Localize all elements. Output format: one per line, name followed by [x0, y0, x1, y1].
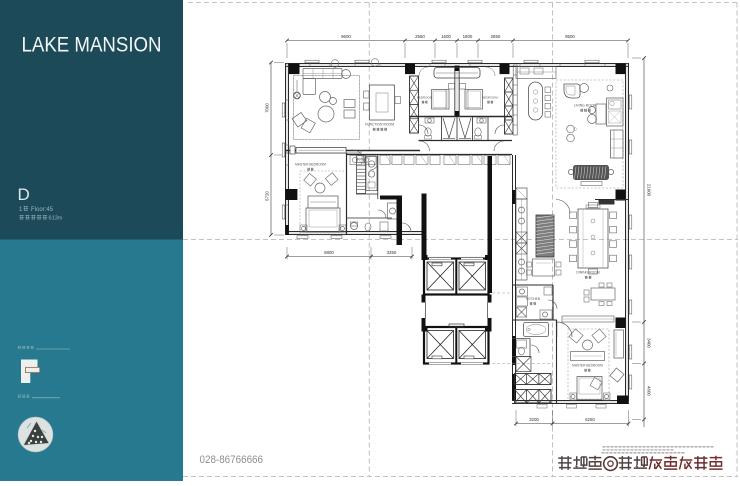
- svg-text:3400: 3400: [647, 338, 652, 348]
- svg-text:MASTER BEDROOM: MASTER BEDROOM: [295, 163, 326, 167]
- svg-text:3350: 3350: [387, 250, 397, 255]
- svg-text:028-86766666: 028-86766666: [200, 454, 264, 466]
- svg-text:6800: 6800: [324, 250, 334, 255]
- svg-text:m: m: [58, 216, 62, 222]
- svg-text:9500: 9500: [565, 34, 575, 39]
- svg-text:LAKE MANSION: LAKE MANSION: [22, 33, 162, 57]
- svg-text:MASTER BEDROOM: MASTER BEDROOM: [572, 364, 603, 368]
- svg-text:2850: 2850: [491, 34, 501, 39]
- svg-text:6250: 6250: [585, 417, 595, 422]
- svg-text:BEDROOM: BEDROOM: [417, 96, 433, 100]
- svg-text:D: D: [18, 185, 30, 204]
- svg-text:Floor:45: Floor:45: [31, 207, 54, 213]
- svg-text:FUNCTION ROOM: FUNCTION ROOM: [365, 123, 394, 127]
- svg-text:21600: 21600: [647, 184, 652, 197]
- svg-text:KITCHEN: KITCHEN: [526, 297, 541, 301]
- svg-text:5720: 5720: [265, 191, 270, 201]
- svg-text:613: 613: [49, 216, 58, 222]
- svg-text:9600: 9600: [341, 34, 351, 39]
- svg-text:1800: 1800: [463, 34, 473, 39]
- svg-text:DINING ROOM: DINING ROOM: [576, 271, 600, 275]
- svg-text:1600: 1600: [441, 34, 451, 39]
- svg-text:BEDROOM: BEDROOM: [482, 96, 498, 100]
- svg-text:7000: 7000: [265, 103, 270, 113]
- svg-text:2550: 2550: [415, 34, 425, 39]
- svg-text:3200: 3200: [529, 417, 539, 422]
- svg-text:4600: 4600: [647, 386, 652, 396]
